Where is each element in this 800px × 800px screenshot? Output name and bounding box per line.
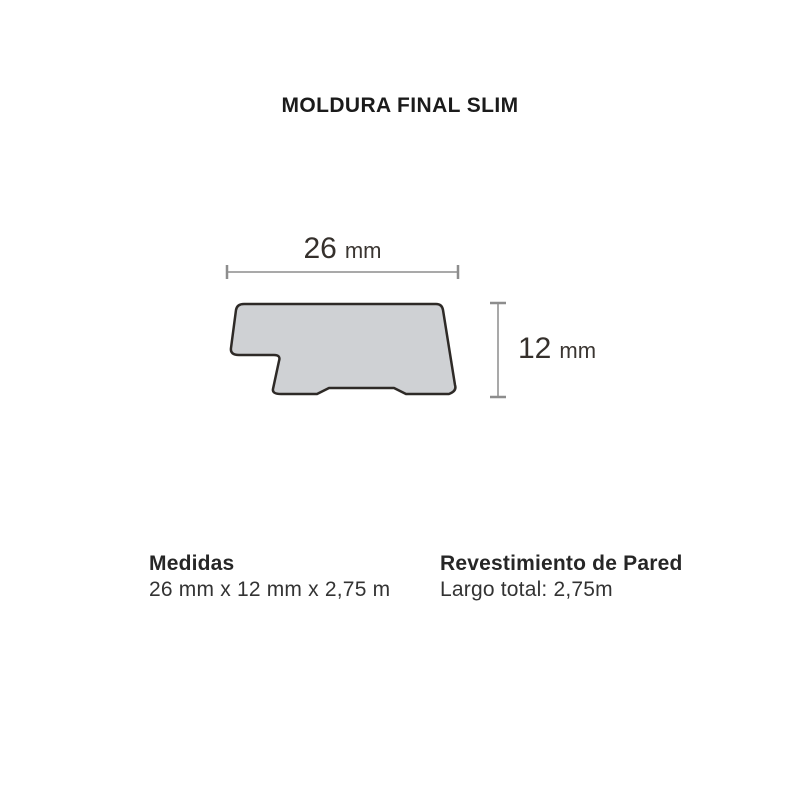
measures-block: Medidas 26 mm x 12 mm x 2,75 m	[149, 551, 390, 603]
profile-cross-section-shape	[231, 304, 456, 394]
width-unit: mm	[345, 240, 382, 262]
measures-value: 26 mm x 12 mm x 2,75 m	[149, 577, 390, 603]
width-dimension-label: 26 mm	[227, 234, 458, 264]
product-spec-card: MOLDURA FINAL SLIM 26 mm 12 mm Medidas 2…	[0, 0, 800, 800]
coverage-block: Revestimiento de Pared Largo total: 2,75…	[440, 551, 683, 603]
height-dimension-label: 12 mm	[518, 334, 596, 364]
width-dimension-line	[227, 265, 458, 279]
measures-heading: Medidas	[149, 551, 390, 577]
profile-diagram	[0, 0, 800, 800]
height-unit: mm	[559, 340, 596, 362]
width-value: 26	[303, 234, 336, 264]
coverage-heading: Revestimiento de Pared	[440, 551, 683, 577]
coverage-value: Largo total: 2,75m	[440, 577, 683, 603]
height-value: 12	[518, 334, 551, 364]
height-dimension-line	[490, 303, 506, 397]
